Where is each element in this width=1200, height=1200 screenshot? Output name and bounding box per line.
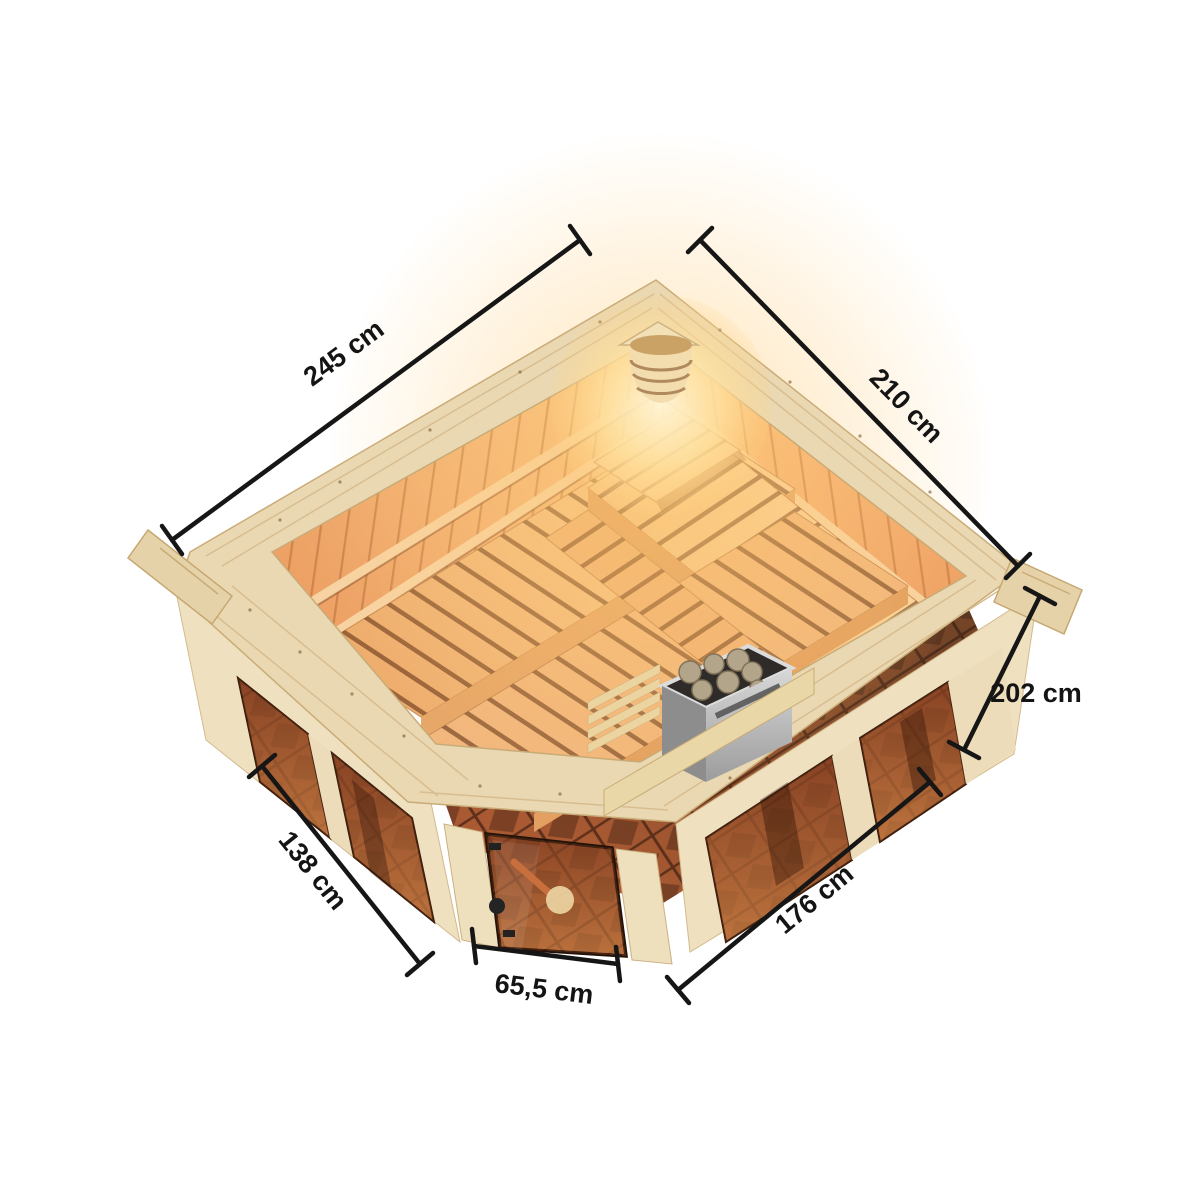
corner-lamp bbox=[551, 295, 771, 515]
product-dimension-diagram: 245 cm 210 cm 202 cm 176 cm 138 cm 65,5 … bbox=[0, 0, 1200, 1200]
door-handle bbox=[489, 898, 505, 914]
door-hinge-icon bbox=[503, 930, 515, 937]
door-hinge-icon bbox=[489, 843, 501, 850]
dimension-label-height: 202 cm bbox=[990, 678, 1082, 708]
sauna-illustration: 245 cm 210 cm 202 cm 176 cm 138 cm 65,5 … bbox=[0, 0, 1200, 1200]
door-glass bbox=[486, 834, 626, 956]
dimension-label-door: 65,5 cm bbox=[493, 968, 595, 1010]
